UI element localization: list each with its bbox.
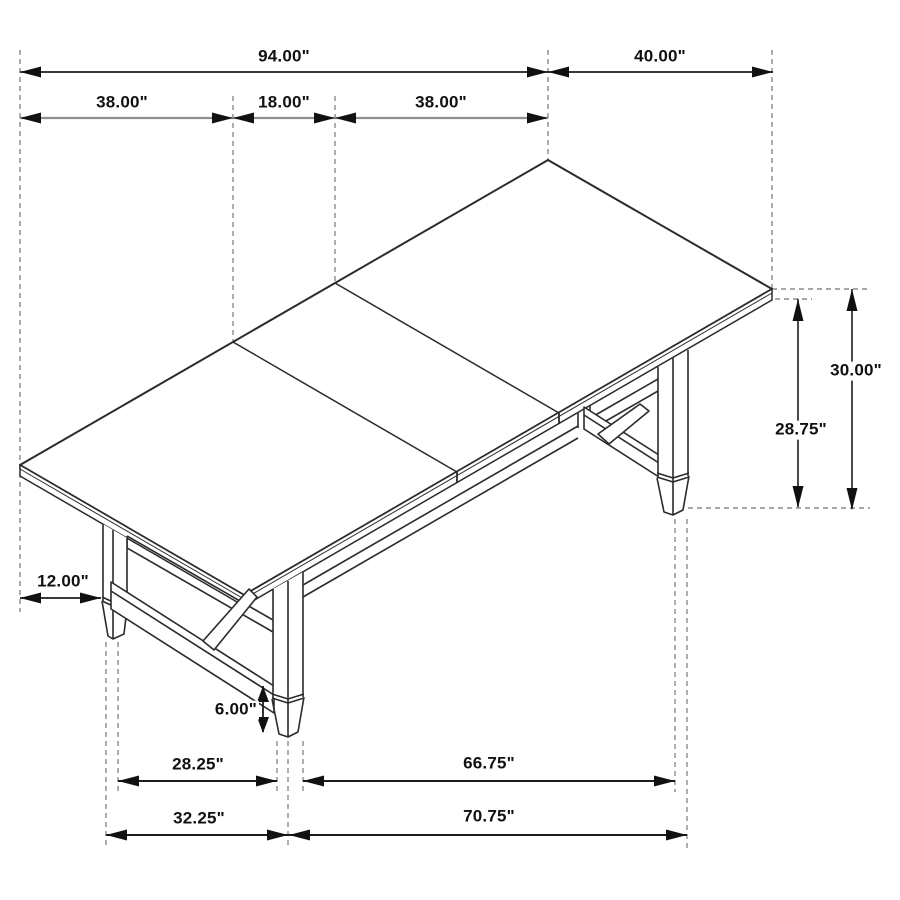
dim-label-table-height: 30.00" xyxy=(828,362,884,381)
dim-label-overall-depth: 40.00" xyxy=(632,48,688,67)
left-back-leg xyxy=(102,524,128,639)
dim-label-foot-height: 6.00" xyxy=(213,701,259,720)
dim-label-overall-length: 94.00" xyxy=(256,48,312,67)
left-front-leg xyxy=(272,572,304,737)
dim-label-feet-outer-depth: 32.25" xyxy=(171,810,227,829)
dim-label-end-overhang: 12.00" xyxy=(35,573,91,592)
dim-label-right-panel: 38.00" xyxy=(413,94,469,113)
table-isometric-drawing xyxy=(0,0,900,900)
dim-label-feet-inner-depth: 28.25" xyxy=(170,756,226,775)
dim-label-left-panel: 38.00" xyxy=(94,94,150,113)
diagram-canvas: 94.00" 40.00" 38.00" 18.00" 38.00" 30.00… xyxy=(0,0,900,900)
right-front-leg xyxy=(657,350,689,515)
dim-label-underside-clearance: 28.75" xyxy=(773,421,829,440)
dim-label-feet-inner-length: 66.75" xyxy=(461,755,517,774)
dim-label-center-leaf: 18.00" xyxy=(256,94,312,113)
dim-label-feet-outer-length: 70.75" xyxy=(461,808,517,827)
